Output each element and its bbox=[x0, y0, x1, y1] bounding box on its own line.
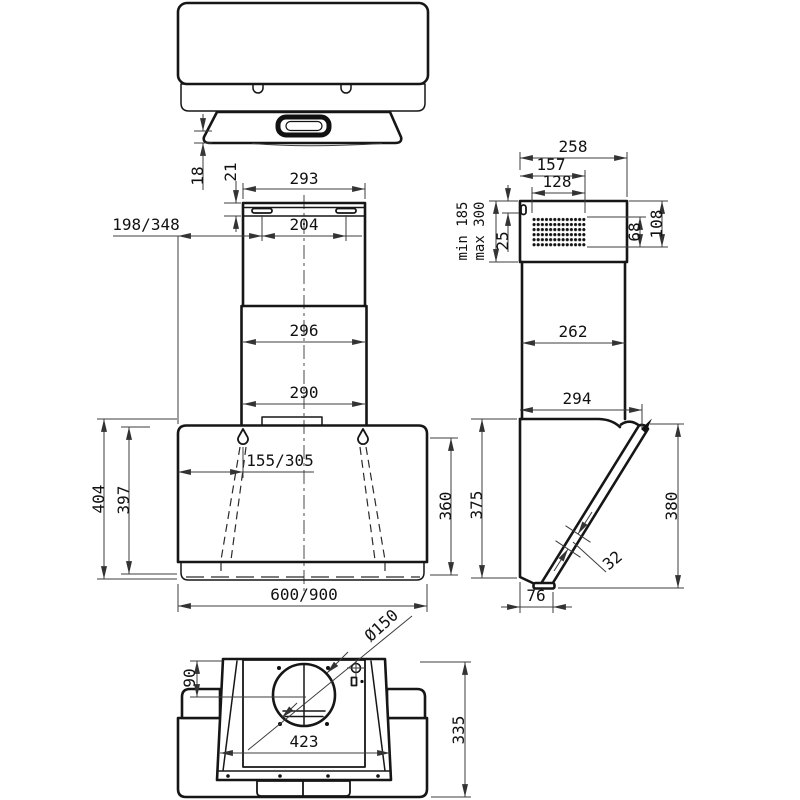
svg-text:296: 296 bbox=[290, 321, 319, 340]
dim-bracket-offsets: 198/348 204 bbox=[112, 215, 362, 424]
dim-glass-overhang: 18 bbox=[188, 114, 212, 190]
dim-chimney-width-top: 293 bbox=[243, 169, 365, 199]
svg-text:380: 380 bbox=[662, 492, 681, 521]
side-bracket-slot bbox=[521, 205, 526, 215]
svg-text:Ø150: Ø150 bbox=[361, 605, 402, 645]
svg-text:18: 18 bbox=[188, 166, 207, 185]
front-keyhole-right bbox=[358, 429, 368, 444]
front-bracket-slot-left bbox=[252, 209, 272, 214]
bottom-tab bbox=[257, 781, 350, 796]
dim-slot-offset: 25 bbox=[493, 185, 519, 252]
side-vent-grid bbox=[532, 217, 586, 248]
svg-text:293: 293 bbox=[290, 169, 319, 188]
svg-text:204: 204 bbox=[290, 215, 319, 234]
svg-text:600/900: 600/900 bbox=[270, 585, 337, 604]
dim-vent-width: 128 bbox=[532, 172, 585, 213]
side-back-bottom bbox=[520, 419, 537, 585]
bottom-wing-right bbox=[387, 689, 425, 718]
svg-text:90: 90 bbox=[180, 668, 199, 687]
top-view-back-strip bbox=[181, 84, 425, 111]
front-body bbox=[178, 426, 427, 563]
svg-text:360: 360 bbox=[436, 492, 455, 521]
dim-chimney-width-base: 290 bbox=[243, 383, 365, 404]
svg-text:198/348: 198/348 bbox=[112, 215, 179, 234]
front-keyhole-left bbox=[238, 429, 248, 444]
dim-chimney-width-mid: 296 bbox=[243, 321, 365, 342]
top-view-glass-outline bbox=[178, 3, 428, 84]
svg-text:335: 335 bbox=[449, 716, 468, 745]
side-view: 258 157 128 min 185 max 300 25 bbox=[455, 137, 684, 613]
svg-text:397: 397 bbox=[114, 486, 133, 515]
front-top-step bbox=[262, 417, 322, 425]
svg-text:max 300: max 300 bbox=[472, 201, 488, 260]
svg-text:290: 290 bbox=[290, 383, 319, 402]
top-view-notch-right bbox=[341, 84, 351, 93]
side-top-edge bbox=[520, 419, 620, 427]
svg-text:155/305: 155/305 bbox=[246, 451, 313, 470]
svg-text:128: 128 bbox=[543, 172, 572, 191]
svg-text:258: 258 bbox=[559, 137, 588, 156]
dim-body-height-front: 397 bbox=[114, 427, 177, 574]
dim-slot-top-offset: 21 bbox=[221, 162, 241, 232]
svg-text:108: 108 bbox=[647, 210, 666, 239]
svg-text:min 185: min 185 bbox=[455, 201, 471, 260]
dim-glass-height-right: 360 bbox=[430, 438, 458, 575]
dim-body-height-total: 404 bbox=[89, 419, 177, 579]
svg-text:21: 21 bbox=[221, 162, 240, 181]
dim-chimney-depth: 262 bbox=[522, 322, 625, 343]
svg-text:262: 262 bbox=[559, 322, 588, 341]
bottom-view: 90 Ø150 423 335 bbox=[178, 605, 471, 797]
top-view: 18 bbox=[178, 3, 428, 190]
svg-text:25: 25 bbox=[493, 231, 512, 250]
dim-body-depth-bottom: 76 bbox=[501, 582, 572, 613]
svg-text:404: 404 bbox=[89, 485, 108, 514]
svg-text:375: 375 bbox=[467, 491, 486, 520]
svg-text:423: 423 bbox=[290, 732, 319, 751]
technical-drawing-page: 18 293 21 bbox=[0, 0, 800, 800]
svg-text:76: 76 bbox=[526, 586, 545, 605]
svg-text:68: 68 bbox=[625, 222, 644, 241]
cooker-hood-dimension-drawing: 18 293 21 bbox=[0, 0, 800, 800]
top-view-notch-left bbox=[253, 84, 263, 93]
dim-keyhole-offset: 155/305 bbox=[178, 447, 314, 478]
front-bracket-slot-right bbox=[336, 209, 356, 214]
dim-body-height-back: 375 bbox=[467, 419, 517, 578]
front-view: 293 21 198/348 204 296 bbox=[89, 162, 458, 612]
bottom-wing-left bbox=[182, 689, 220, 718]
svg-text:294: 294 bbox=[563, 389, 592, 408]
